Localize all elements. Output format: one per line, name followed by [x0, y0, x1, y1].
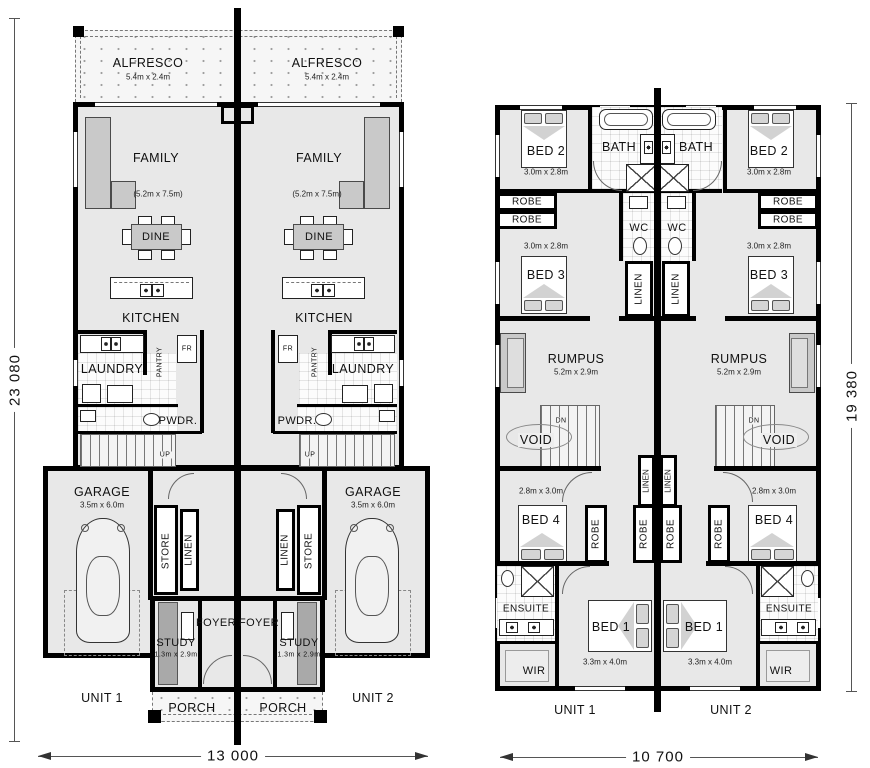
dim-tick	[9, 18, 20, 19]
room-dim-bed4-u2: 2.8m x 3.0m	[752, 487, 796, 496]
cooktop	[101, 337, 111, 351]
window	[816, 135, 821, 177]
pillow	[751, 113, 769, 124]
wall	[758, 641, 818, 644]
room-label-bed1-u2: BED 1	[685, 620, 723, 634]
pillow	[545, 113, 563, 124]
wall	[198, 598, 202, 688]
pillow	[772, 113, 790, 124]
wall	[725, 316, 818, 321]
room-label-bed1-u1: BED 1	[592, 620, 630, 634]
room-label-porch-u2: PORCH	[259, 701, 306, 715]
dim-tick	[846, 103, 857, 104]
dim-arrow	[38, 752, 51, 760]
shower	[761, 566, 794, 597]
car-roof	[355, 556, 389, 616]
window	[816, 262, 821, 304]
room-label-bed4-u2: BED 4	[755, 513, 793, 527]
room-dim-bed1-u2: 3.3m x 4.0m	[688, 658, 732, 667]
wall	[78, 404, 178, 407]
island-sink	[323, 284, 335, 297]
room-label-foyer-u2: FOYER	[239, 617, 279, 629]
room-dim-rumpus-u1: 5.2m x 2.9m	[554, 368, 598, 377]
room-dim-bed1-u1: 3.3m x 4.0m	[583, 658, 627, 667]
window	[690, 686, 740, 691]
stairs-up	[299, 434, 395, 467]
cooktop	[111, 337, 121, 351]
label-robe-u1b: ROBE	[512, 215, 542, 226]
toilet	[501, 570, 514, 587]
dim-value-first-height: 19 380	[844, 364, 861, 428]
label-dn-u1: DN	[555, 418, 568, 425]
chair	[161, 250, 175, 260]
room-label-pantry-u2: PANTRY	[312, 347, 319, 377]
room-label-void-u2: VOID	[761, 433, 797, 447]
car-mirror	[81, 524, 89, 532]
bed-fold	[750, 284, 792, 298]
porch-post	[148, 710, 161, 723]
shower	[626, 164, 657, 192]
window	[399, 132, 404, 187]
wall	[692, 193, 696, 261]
room-label-alfresco-u2: ALFRESCO	[292, 56, 363, 70]
window	[495, 262, 500, 304]
party-wall-first	[654, 88, 661, 712]
room-label-rumpus-u2: RUMPUS	[711, 352, 768, 366]
room-label-wir-u2: WIR	[770, 665, 793, 677]
shower	[521, 566, 554, 597]
basin	[797, 622, 809, 633]
car-mirror	[350, 524, 358, 532]
washer	[82, 384, 101, 403]
room-label-wir-u1: WIR	[523, 665, 546, 677]
dim-value-first-width: 10 700	[626, 749, 690, 766]
room-label-bed4-u1: BED 4	[522, 513, 560, 527]
chair	[323, 250, 337, 260]
room-dim-alfresco-u2: 5.4m x 2.4m	[305, 73, 349, 82]
room-label-garage-u1: GARAGE	[74, 485, 130, 499]
laundry-tub	[107, 385, 133, 403]
pillow	[524, 113, 542, 124]
room-label-ensuite-u2: ENSUITE	[766, 604, 812, 615]
unit1-label-first: UNIT 1	[554, 703, 596, 717]
room-label-study-u2: STUDY	[279, 637, 318, 649]
label-robe-bed4-u1: ROBE	[591, 519, 602, 549]
unit2-label-first: UNIT 2	[710, 703, 752, 717]
pillow	[636, 628, 649, 648]
island-dash	[114, 282, 189, 283]
label-robe-bed4-u2: ROBE	[714, 519, 725, 549]
room-label-bath-u1: BATH	[602, 140, 636, 154]
label-linen-mid-u2: LINEN	[664, 469, 673, 493]
room-label-garage-u2: GARAGE	[345, 485, 401, 499]
pillow	[545, 300, 563, 311]
car-mirror	[386, 524, 394, 532]
room-label-kitchen-u2: KITCHEN	[295, 311, 353, 325]
room-dim-bed3-u2: 3.0m x 2.8m	[747, 242, 791, 251]
duplex-floor-plan: ALFRESCO 5.4m x 2.4m ALFRESCO 5.4m x 2.4…	[0, 0, 870, 768]
sofa	[85, 117, 111, 209]
room-dim-family-u1: (5.2m x 7.5m)	[133, 190, 182, 199]
bed-fold	[750, 126, 792, 140]
toilet	[668, 237, 682, 255]
basin	[775, 622, 787, 633]
room-dim-family-u2: (5.2m x 7.5m)	[292, 190, 341, 199]
room-label-bed3-u1: BED 3	[527, 268, 565, 282]
sofa	[364, 117, 390, 209]
label-robe-mid-u2: ROBE	[666, 519, 677, 549]
wall	[330, 330, 397, 334]
wc-vanity	[629, 196, 648, 209]
label-robe-mid-u1: ROBE	[639, 519, 650, 549]
pillow	[666, 628, 679, 648]
basin	[528, 622, 540, 633]
label-fridge-u1: FR	[182, 346, 192, 353]
sliding-door	[258, 102, 380, 107]
dim-tick	[846, 691, 857, 692]
dim-arrow	[415, 752, 428, 760]
room-dim-alfresco-u1: 5.4m x 2.4m	[126, 73, 170, 82]
wall	[148, 468, 153, 600]
room-label-bed3-u2: BED 3	[750, 268, 788, 282]
room-label-family-u1: FAMILY	[133, 151, 179, 165]
wall	[273, 598, 277, 688]
room-label-porch-u1: PORCH	[168, 701, 215, 715]
pillow	[521, 549, 541, 560]
room-label-wc-u1: WC	[629, 222, 648, 234]
dim-arrow	[805, 753, 818, 761]
room-label-dine-u1: DINE	[142, 231, 170, 243]
car-roof	[86, 556, 120, 616]
basin	[644, 141, 653, 154]
window	[73, 132, 78, 187]
porch-post	[314, 710, 327, 723]
basin	[506, 622, 518, 633]
room-label-family-u2: FAMILY	[296, 151, 342, 165]
label-robe-u1a: ROBE	[512, 197, 542, 208]
wall	[322, 468, 327, 600]
dim-arrow	[500, 753, 513, 761]
bed-fold	[523, 284, 565, 298]
washer	[374, 384, 393, 403]
wall	[497, 466, 601, 471]
window	[816, 345, 821, 387]
sofa-seat	[791, 338, 808, 388]
wc-vanity	[667, 196, 686, 209]
window	[495, 135, 500, 177]
stairs-up	[80, 434, 176, 467]
room-label-pwdr-u2: PWDR.	[278, 415, 317, 427]
pillow	[666, 604, 679, 624]
bed-fold	[750, 533, 794, 547]
unit1-label-ground: UNIT 1	[81, 691, 123, 705]
pillow	[772, 300, 790, 311]
room-dim-study-u1: 1.3m x 2.9m	[155, 652, 198, 659]
room-label-store-u1: STORE	[161, 533, 172, 569]
wall	[555, 563, 559, 689]
toilet	[143, 413, 160, 426]
shower	[658, 164, 689, 192]
label-linen-u1: LINEN	[634, 273, 645, 304]
label-fridge-u2: FR	[283, 346, 293, 353]
sofa-seat	[507, 338, 524, 388]
toilet	[315, 413, 332, 426]
unit2-label-ground: UNIT 2	[352, 691, 394, 705]
chair	[300, 250, 314, 260]
room-dim-rumpus-u2: 5.2m x 2.9m	[717, 368, 761, 377]
study-desk	[181, 612, 194, 640]
room-dim-bed2-u1: 3.0m x 2.8m	[524, 168, 568, 177]
bed-fold	[520, 533, 564, 547]
room-label-bed2-u1: BED 2	[527, 144, 565, 158]
sofa-chaise	[339, 181, 364, 209]
room-label-pantry-u1: PANTRY	[157, 347, 164, 377]
room-label-linen-u2: LINEN	[280, 534, 291, 565]
room-label-study-u1: STUDY	[156, 637, 195, 649]
pillow	[751, 549, 771, 560]
laundry-tub	[342, 385, 368, 403]
bathtub-inner	[667, 113, 711, 126]
toilet	[801, 570, 814, 587]
basin	[662, 141, 671, 154]
label-linen-mid-u1: LINEN	[642, 469, 651, 493]
room-dim-bed4-u1: 2.8m x 3.0m	[519, 487, 563, 496]
wall	[619, 193, 623, 261]
room-label-bath-u2: BATH	[679, 140, 713, 154]
room-dim-bed3-u1: 3.0m x 2.8m	[524, 242, 568, 251]
island-sink	[152, 284, 164, 297]
island-sink	[311, 284, 323, 297]
room-dim-garage-u2: 3.5m x 6.0m	[351, 501, 395, 510]
sliding-door	[95, 102, 217, 107]
room-label-dine-u2: DINE	[305, 231, 333, 243]
wall	[588, 105, 592, 193]
label-robe-u2a: ROBE	[773, 197, 803, 208]
island-dash	[286, 282, 361, 283]
room-label-foyer-u1: FOYER	[196, 617, 236, 629]
room-label-linen-u1: LINEN	[184, 534, 195, 565]
party-wall-detail	[221, 105, 254, 124]
study-desk	[281, 612, 294, 640]
room-label-void-u1: VOID	[518, 433, 554, 447]
alfresco-post	[393, 26, 404, 37]
bathtub-inner	[604, 113, 648, 126]
wall	[200, 330, 204, 433]
label-robe-u2b: ROBE	[773, 215, 803, 226]
room-dim-bed2-u2: 3.0m x 2.8m	[747, 168, 791, 177]
label-dn-u2: DN	[748, 418, 761, 425]
cooktop	[354, 337, 364, 351]
room-label-laundry-u2: LAUNDRY	[332, 362, 394, 376]
room-label-laundry-u1: LAUNDRY	[81, 362, 143, 376]
room-label-bed2-u2: BED 2	[750, 144, 788, 158]
room-label-wc-u2: WC	[667, 222, 686, 234]
pwdr-vanity	[80, 410, 96, 422]
room-label-ensuite-u1: ENSUITE	[503, 604, 549, 615]
pillow	[544, 549, 564, 560]
toilet	[633, 237, 647, 255]
pwdr-vanity	[379, 410, 395, 422]
chair	[138, 250, 152, 260]
bed-fold	[523, 126, 565, 140]
wall	[497, 641, 557, 644]
window	[575, 686, 625, 691]
pillow	[751, 300, 769, 311]
sofa-chaise	[111, 181, 136, 209]
wall	[756, 563, 760, 689]
island-sink	[140, 284, 152, 297]
dim-tick	[9, 741, 20, 742]
label-linen-u2: LINEN	[671, 273, 682, 304]
chair	[181, 229, 191, 245]
room-dim-garage-u1: 3.5m x 6.0m	[80, 501, 124, 510]
dim-value-ground-width: 13 000	[201, 748, 265, 765]
wall	[78, 330, 145, 334]
wall	[714, 466, 818, 471]
dim-value-ground-height: 23 080	[7, 348, 24, 412]
car-mirror	[117, 524, 125, 532]
label-up-u2: UP	[303, 452, 318, 459]
wall	[297, 404, 397, 407]
pillow	[774, 549, 794, 560]
window	[399, 360, 404, 386]
pillow	[524, 300, 542, 311]
room-label-pwdr-u1: PWDR.	[159, 415, 198, 427]
room-label-alfresco-u1: ALFRESCO	[113, 56, 184, 70]
wall	[271, 330, 275, 433]
label-up-u1: UP	[158, 452, 173, 459]
wall	[497, 316, 590, 321]
room-label-rumpus-u1: RUMPUS	[548, 352, 605, 366]
chair	[343, 229, 353, 245]
room-label-store-u2: STORE	[304, 533, 315, 569]
alfresco-post	[73, 26, 84, 37]
room-dim-study-u2: 1.3m x 2.9m	[278, 652, 321, 659]
cooktop	[364, 337, 374, 351]
wall	[723, 105, 727, 193]
pillow	[636, 604, 649, 624]
room-label-kitchen-u1: KITCHEN	[122, 311, 180, 325]
